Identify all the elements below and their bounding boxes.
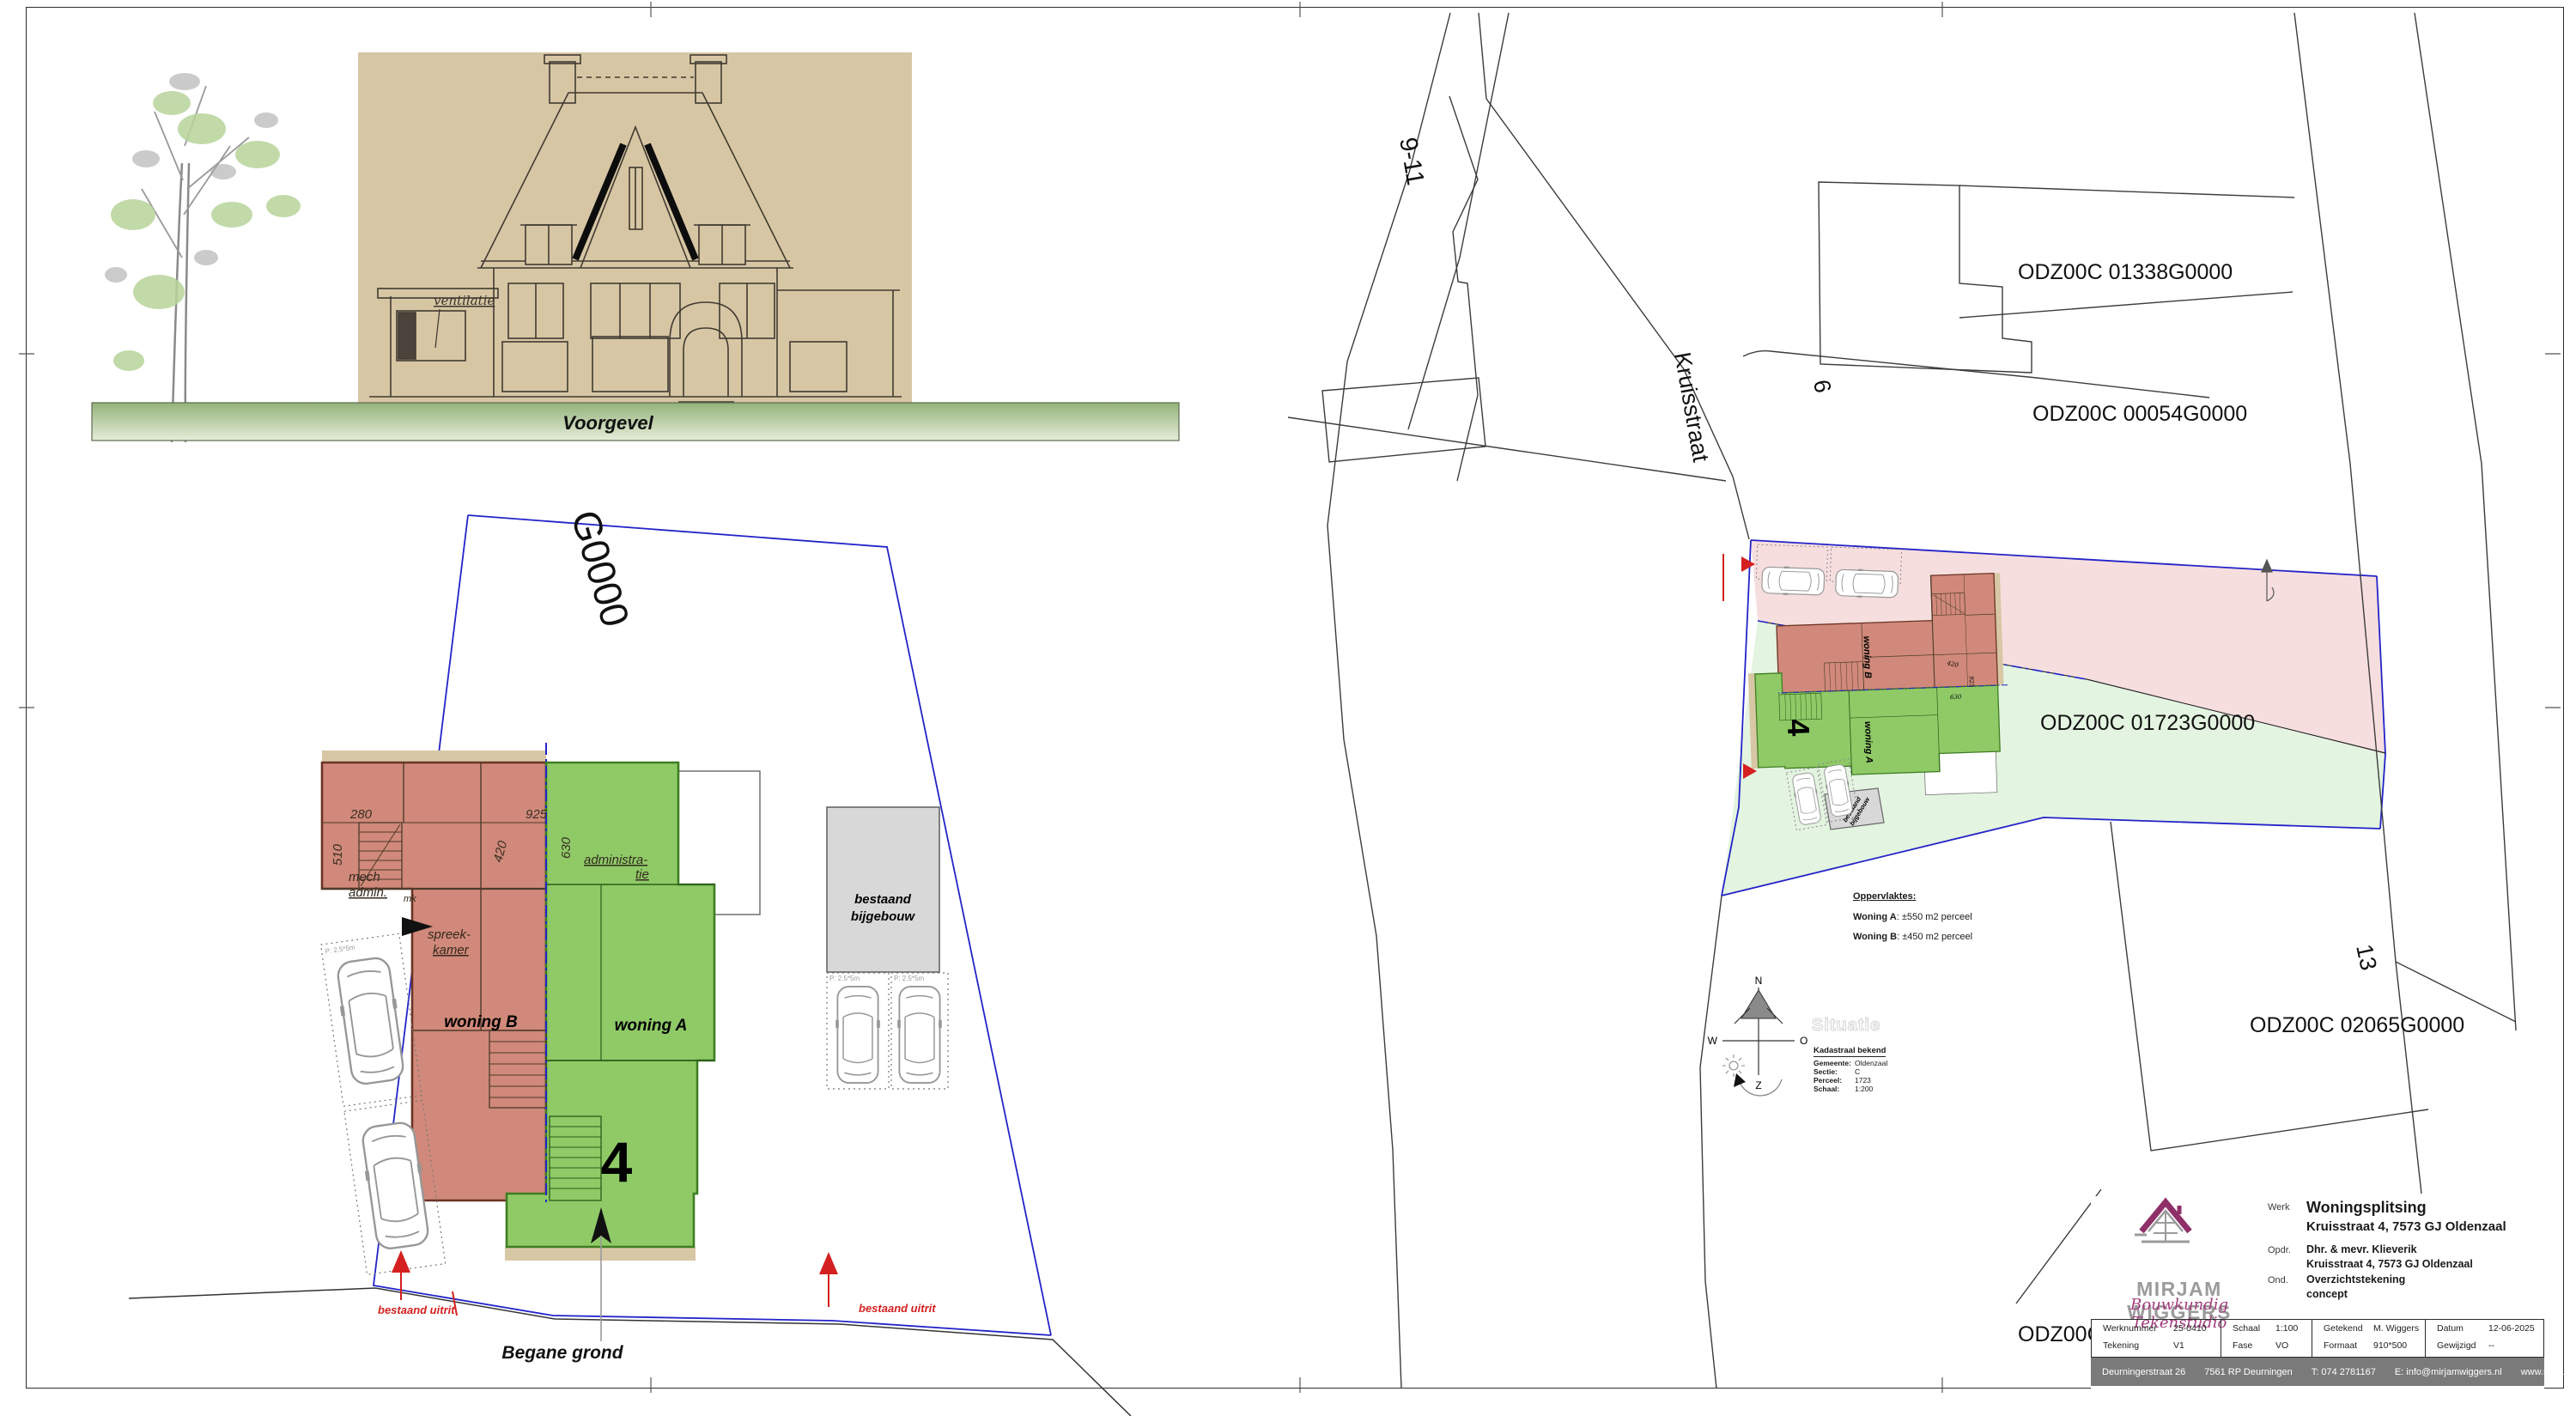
svg-text:admin.: admin. xyxy=(349,885,387,900)
floor-plan: G0000 bestaand bijgebouw P: 2.5*5m P: 2.… xyxy=(129,505,1131,1416)
fase-value: VO xyxy=(2275,1340,2288,1351)
svg-text:630: 630 xyxy=(559,836,574,859)
svg-text:kamer: kamer xyxy=(433,943,470,957)
table-divider xyxy=(2312,1320,2312,1357)
drawing-sheet: ventilatie Voorgevel G0000 bestaand bijg… xyxy=(0,0,2576,1416)
sun-icon xyxy=(1722,1054,1745,1077)
kadastraal-row: Perceel:1723 xyxy=(1814,1076,1871,1085)
parking-size-label: P: 2.5*5m xyxy=(325,944,355,956)
getekend-value: M. Wiggers xyxy=(2373,1323,2419,1334)
kadastraal-row: Sectie:C xyxy=(1814,1067,1860,1076)
footer-address: Deurningerstraat 26 xyxy=(2102,1367,2185,1377)
compass-e: O xyxy=(1800,1035,1807,1047)
footer-website: www.mirjamwiggers.nl xyxy=(2521,1367,2576,1377)
werk-line1: Woningsplitsing xyxy=(2306,1199,2427,1217)
svg-text:280: 280 xyxy=(349,807,373,822)
housenumber-9-11: 9-11 xyxy=(1394,136,1429,188)
gewijzigd-value: -- xyxy=(2488,1340,2494,1351)
area-woning-b: Woning B: ±450 m2 perceel xyxy=(1853,932,2025,942)
gewijzigd-label: Gewijzigd xyxy=(2437,1340,2476,1351)
footer-postal: 7561 RP Deurningen xyxy=(2204,1367,2293,1377)
unit-a-label: woning A xyxy=(615,1017,688,1035)
facade-elevation: ventilatie Voorgevel xyxy=(92,52,1179,442)
site-plan: woning B woning A 4 925 420 630 bestaand… xyxy=(1288,13,2516,1389)
parking-size-label: P: 2.5*5m xyxy=(894,975,924,982)
werk-label: Werk xyxy=(2268,1202,2289,1212)
housenumber-13: 13 xyxy=(2351,942,2382,973)
schaal-label: Schaal xyxy=(2233,1323,2260,1334)
opdr-line2: Kruisstraat 4, 7573 GJ Oldenzaal xyxy=(2306,1258,2473,1270)
svg-text:bestaand uitrit: bestaand uitrit xyxy=(378,1304,455,1316)
werknummer-value: 25-0410 xyxy=(2173,1323,2207,1334)
svg-text:spreek-: spreek- xyxy=(428,927,471,942)
svg-text:tie: tie xyxy=(635,867,649,882)
outbuilding-label-1: bestaand xyxy=(854,892,912,907)
table-divider xyxy=(2221,1320,2221,1357)
svg-text:administra-: administra- xyxy=(584,853,647,867)
formaat-value: 910*500 xyxy=(2373,1340,2407,1351)
site-house-number: 4 xyxy=(1781,718,1817,736)
svg-text:510: 510 xyxy=(331,843,345,866)
housenumber-6: 6 xyxy=(1808,378,1836,395)
area-woning-a: Woning A: ±550 m2 perceel xyxy=(1853,912,2025,922)
ond-label: Ond. xyxy=(2268,1275,2288,1285)
compass-s: Z xyxy=(1755,1079,1761,1091)
areas-heading: Oppervlaktes: xyxy=(1853,891,1916,902)
footer-phone: T: 074 2781167 xyxy=(2312,1367,2376,1377)
werknummer-label: Werknummer xyxy=(2103,1323,2157,1334)
datum-label: Datum xyxy=(2437,1323,2464,1334)
site-plan-ghost-title: Situatie xyxy=(1812,1016,1880,1036)
tekening-label: Tekening xyxy=(2103,1340,2139,1351)
opdr-line1: Dhr. & mevr. Klieverik xyxy=(2306,1243,2417,1255)
fase-label: Fase xyxy=(2233,1340,2252,1351)
werk-line2: Kruisstraat 4, 7573 GJ Oldenzaal xyxy=(2306,1219,2506,1234)
kadastraal-row: Schaal:1:200 xyxy=(1814,1085,1873,1093)
facade-annotation: ventilatie xyxy=(434,293,495,308)
outbuilding xyxy=(827,807,939,972)
title-table xyxy=(2091,1319,2544,1358)
ond-line2: concept xyxy=(2306,1288,2348,1300)
svg-text:mech: mech xyxy=(349,870,380,884)
house-number: 4 xyxy=(601,1130,633,1194)
parking-east: P: 2.5*5m P: 2.5*5m xyxy=(827,973,948,1089)
floor-plan-title: Begane grond xyxy=(501,1343,623,1363)
site-unit-b-label: woning B xyxy=(1861,635,1873,678)
tekening-value: V1 xyxy=(2173,1340,2184,1351)
site-dim: 925 xyxy=(1968,676,1975,688)
kadastraal-row: Gemeente:Oldenzaal xyxy=(1814,1059,1887,1067)
compass-w: W xyxy=(1708,1035,1718,1047)
kadastraal-block: Kadastraal bekend Gemeente:Oldenzaal Sec… xyxy=(1814,1046,1925,1093)
parcel-id-01338: ODZ00C 01338G0000 xyxy=(2018,260,2233,284)
datum-value: 12-06-2025 xyxy=(2488,1323,2535,1334)
table-divider xyxy=(2425,1320,2426,1357)
footer-email: E: info@mirjamwiggers.nl xyxy=(2395,1367,2502,1377)
parcel-partial-label: G0000 xyxy=(562,505,638,631)
street-label: Kruisstraat xyxy=(1669,350,1714,465)
outbuilding-label-2: bijgebouw xyxy=(851,909,915,924)
parking-size-label: P: 2.5*5m xyxy=(829,975,860,982)
formaat-label: Formaat xyxy=(2324,1340,2357,1351)
areas-block: Oppervlaktes: Woning A: ±550 m2 perceel … xyxy=(1853,891,2025,942)
unit-b-label: woning B xyxy=(444,1013,518,1031)
kadastraal-heading: Kadastraal bekend xyxy=(1814,1047,1886,1057)
logo-house-icon xyxy=(2135,1197,2198,1249)
parcel-id-01723: ODZ00C 01723G0000 xyxy=(2040,711,2255,735)
opdr-label: Opdr. xyxy=(2268,1245,2291,1255)
facade-title: Voorgevel xyxy=(562,412,653,434)
schaal-value: 1:100 xyxy=(2275,1323,2298,1334)
getekend-label: Getekend xyxy=(2324,1323,2363,1334)
compass: N W O Z xyxy=(1708,975,1808,1096)
site-dim: 630 xyxy=(1950,694,1962,701)
site-unit-a-label: woning A xyxy=(1862,721,1874,764)
parcel-id-02065: ODZ00C 02065G0000 xyxy=(2250,1013,2464,1037)
svg-text:925: 925 xyxy=(526,807,548,822)
ond-line1: Overzichtstekening xyxy=(2306,1273,2405,1285)
compass-n: N xyxy=(1755,975,1763,987)
tree-sketch xyxy=(105,73,301,442)
parcel-id-00054: ODZ00C 00054G0000 xyxy=(2032,402,2247,426)
title-footer: Deurningerstraat 26 7561 RP Deurningen T… xyxy=(2091,1358,2544,1386)
svg-text:mk: mk xyxy=(404,894,416,904)
svg-text:bestaand uitrit: bestaand uitrit xyxy=(859,1302,936,1315)
